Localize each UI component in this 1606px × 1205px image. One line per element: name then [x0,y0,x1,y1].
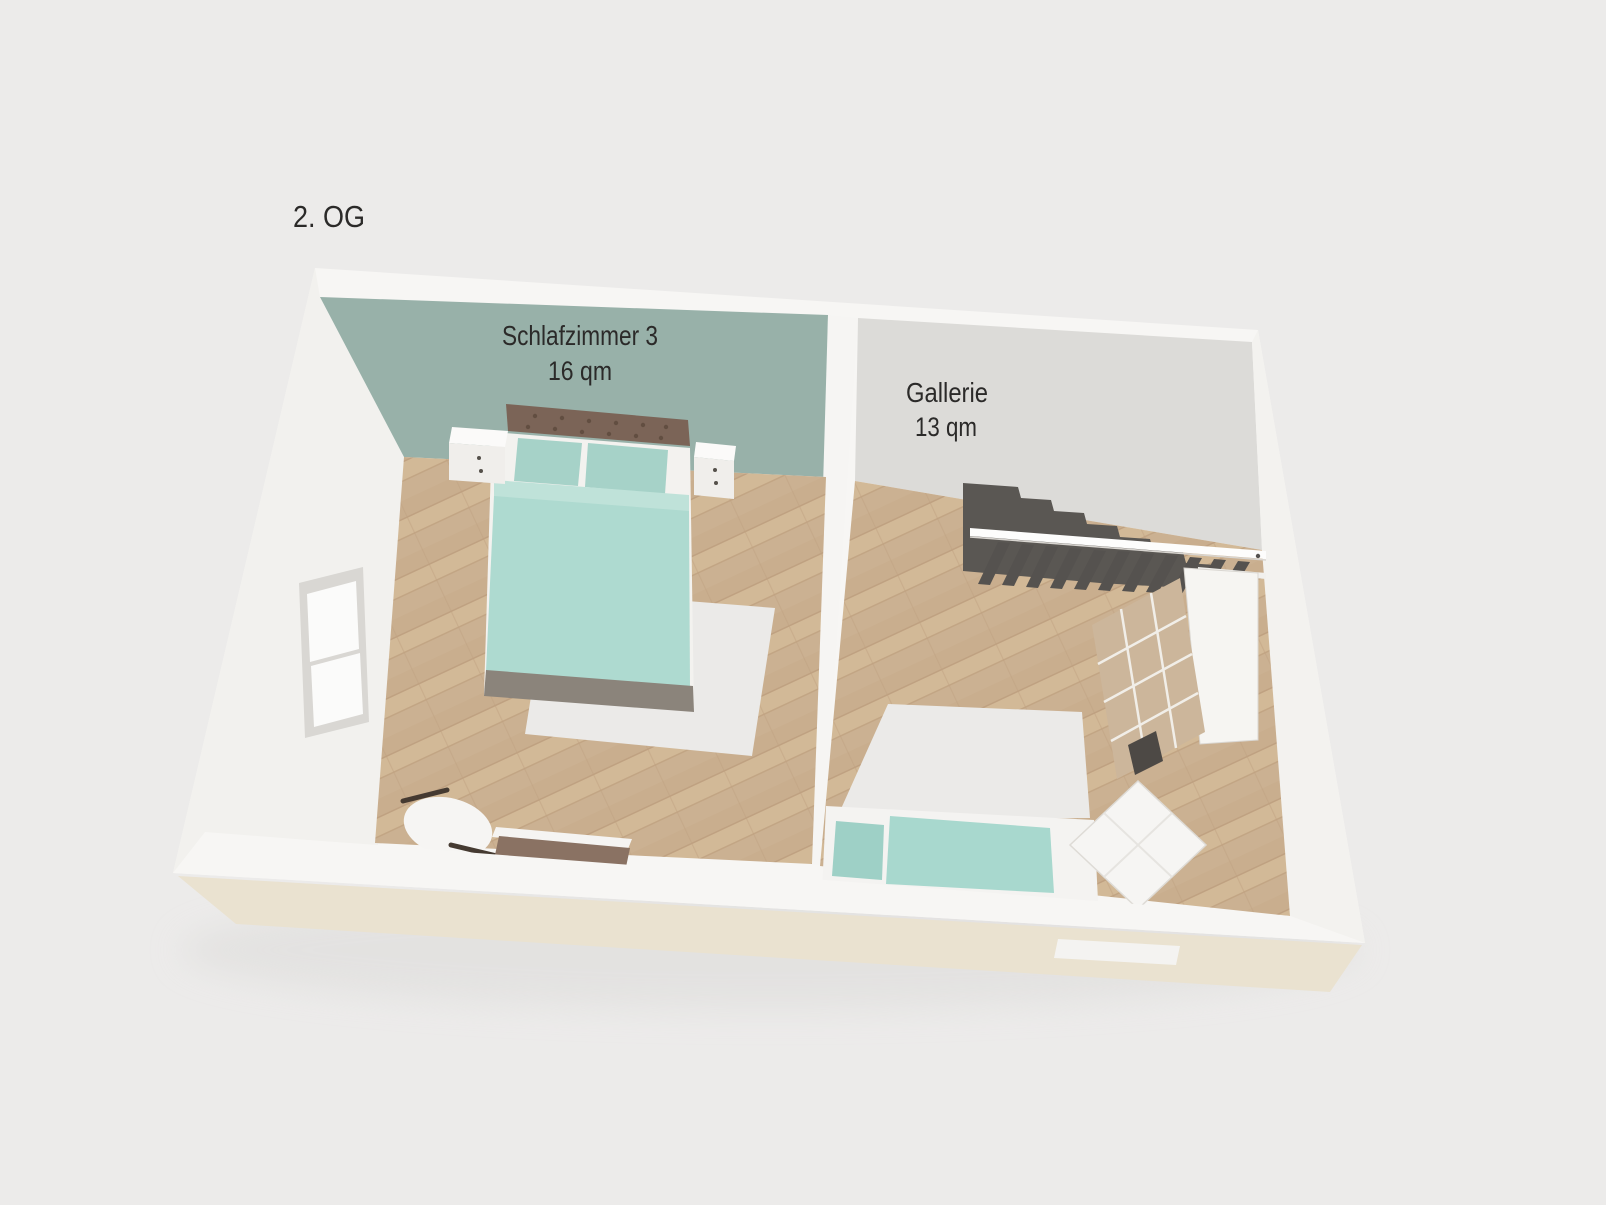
room-area-schlafzimmer: 16 qm [548,356,612,386]
nightstand-handle [714,481,718,485]
nightstand-handle [713,468,717,472]
daybed-blanket [886,816,1054,893]
nightstand-handle [477,456,481,460]
window-pane-bottom [311,653,363,727]
nightstand-handle [479,469,483,473]
nightstand-front [694,457,734,499]
bed-pillow-right [585,443,668,494]
room-area-gallerie: 13 qm [915,412,977,442]
daybed-pillow [832,821,884,880]
room-label-schlafzimmer: Schlafzimmer 3 [502,320,658,351]
bed-duvet [486,496,690,688]
floorplan-3d-view: 2. OG Schlafzimmer 3 16 qm Gallerie 13 q… [0,0,1606,1205]
floorplan-page: 2. OG Schlafzimmer 3 16 qm Gallerie 13 q… [0,0,1606,1205]
room-label-gallerie: Gallerie [906,377,988,408]
floor-label: 2. OG [293,199,365,234]
window-pane-top [307,581,359,662]
bed-pillow-left [514,438,582,486]
nightstand-left [449,427,508,484]
bedroom-window [299,567,369,738]
nightstand-front [449,443,505,484]
nightstand-right [694,442,736,499]
railing-post-cap [1256,554,1260,558]
bedroom-bed [484,404,694,712]
